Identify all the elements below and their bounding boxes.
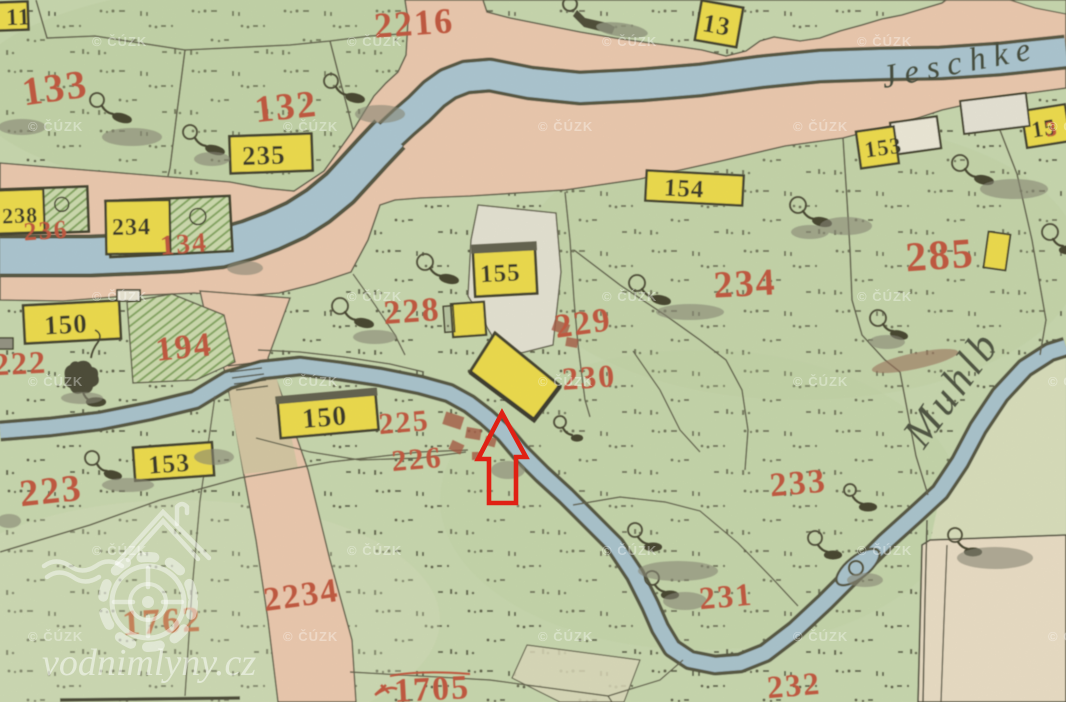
svg-text:© ČÚZK: © ČÚZK [283, 374, 338, 389]
svg-text:© ČÚZK: © ČÚZK [602, 543, 657, 558]
svg-text:© ČÚZK: © ČÚZK [347, 34, 402, 49]
svg-text:© ČÚZK: © ČÚZK [793, 374, 848, 389]
svg-text:© ČÚZK: © ČÚZK [347, 289, 402, 304]
svg-text:© ČÚZK: © ČÚZK [602, 34, 657, 49]
svg-text:© ČÚZK: © ČÚZK [857, 543, 912, 558]
svg-text:© ČÚZK: © ČÚZK [793, 629, 848, 644]
svg-text:© ČÚZK: © ČÚZK [283, 629, 338, 644]
svg-text:© ČÚZK: © ČÚZK [857, 34, 912, 49]
svg-text:© ČÚZK: © ČÚZK [538, 629, 593, 644]
svg-text:© ČÚZK: © ČÚZK [283, 119, 338, 134]
svg-text:© ČÚZK: © ČÚZK [28, 374, 83, 389]
svg-text:vodnimlyny.cz: vodnimlyny.cz [42, 642, 256, 684]
svg-text:© ČÚZK: © ČÚZK [347, 543, 402, 558]
svg-text:© ČÚZK: © ČÚZK [1048, 374, 1066, 389]
svg-text:© ČÚZK: © ČÚZK [1048, 629, 1066, 644]
svg-text:© ČÚZK: © ČÚZK [28, 119, 83, 134]
svg-text:© ČÚZK: © ČÚZK [793, 119, 848, 134]
svg-text:© ČÚZK: © ČÚZK [92, 34, 147, 49]
svg-text:© ČÚZK: © ČÚZK [1048, 119, 1066, 134]
svg-text:© ČÚZK: © ČÚZK [538, 119, 593, 134]
svg-text:© ČÚZK: © ČÚZK [538, 374, 593, 389]
svg-text:© ČÚZK: © ČÚZK [92, 289, 147, 304]
svg-text:© ČÚZK: © ČÚZK [602, 289, 657, 304]
svg-text:© ČÚZK: © ČÚZK [857, 289, 912, 304]
